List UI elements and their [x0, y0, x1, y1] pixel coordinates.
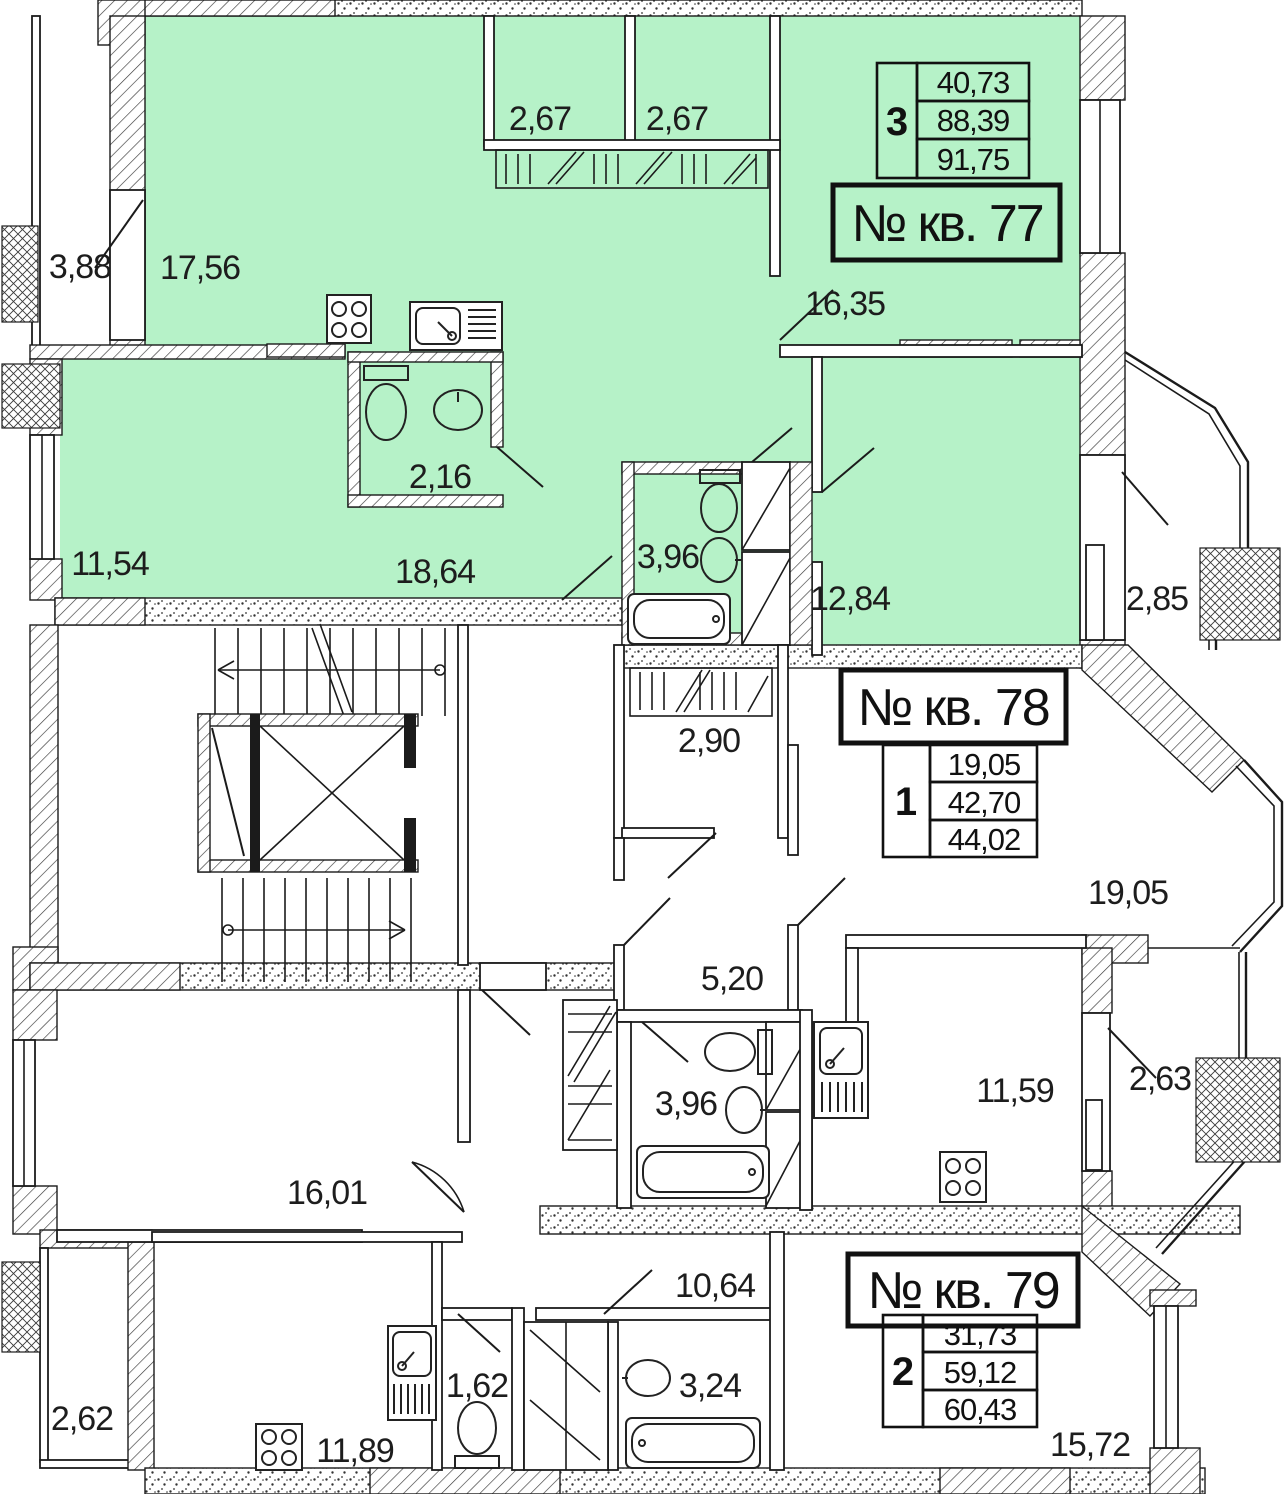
stove-icon-apt77	[327, 295, 371, 343]
area-living-77: 40,73	[937, 65, 1010, 100]
window-living-1601	[13, 1040, 35, 1186]
elevator	[198, 714, 418, 872]
apartment-number-79: № кв. 79	[867, 1262, 1058, 1320]
window-bedroom-left	[30, 435, 54, 559]
sink-icon-apt78	[726, 1087, 766, 1133]
room-label-bathroom-78: 3,96	[655, 1085, 717, 1123]
rooms-count-78: 1	[895, 780, 917, 824]
room-label-bedroom-right-77: 16,35	[805, 285, 885, 323]
room-label-wc-77: 2,16	[409, 458, 471, 496]
room-label-bedroom-bottom-77: 12,84	[810, 580, 890, 618]
room-label-balcony-left-77: 3,88	[49, 248, 111, 286]
bathtub-icon-apt79	[626, 1418, 760, 1468]
area-balcony-79: 60,43	[944, 1392, 1017, 1427]
stairs-upper-flight	[215, 624, 445, 716]
bay-1905-railing	[1232, 760, 1282, 952]
area-balcony-77: 91,75	[937, 142, 1010, 177]
area-living-79: 31,73	[944, 1317, 1017, 1352]
vent-shaft-apt79	[524, 1322, 608, 1470]
stove-icon-apt78	[940, 1152, 986, 1202]
apartment-number-box-77: № кв. 77	[833, 185, 1060, 260]
room-label-closet1-77: 2,67	[509, 100, 571, 138]
room-label-balcony-79: 2,62	[51, 1400, 113, 1438]
apartment-79-entry-gap	[480, 963, 546, 990]
apartment-number-78: № кв. 78	[857, 679, 1048, 737]
window-bedroom-right	[1080, 100, 1120, 253]
rooms-count-79: 2	[892, 1350, 914, 1394]
wardrobe-apt78	[630, 668, 772, 716]
room-label-hall-78: 2,90	[678, 722, 740, 760]
room-label-closet2-77: 2,67	[646, 100, 708, 138]
room-label-kitchen-77: 17,56	[160, 249, 240, 287]
area-living-78: 19,05	[948, 747, 1021, 782]
stove-icon-apt79	[256, 1424, 302, 1470]
area-total-78: 42,70	[948, 785, 1021, 820]
sink-icon-apt79-bath	[622, 1360, 670, 1396]
kitchen-sink-icon-apt78	[814, 1022, 868, 1118]
rooms-count-77: 3	[886, 100, 908, 144]
apartment-number-77: № кв. 77	[851, 195, 1042, 253]
room-label-corridor-78: 5,20	[701, 960, 763, 998]
room-label-balcony-78: 2,63	[1129, 1060, 1191, 1098]
area-balcony-78: 44,02	[948, 822, 1021, 857]
room-label-bathroom-77: 3,96	[637, 538, 699, 576]
apartment-number-box-78: № кв. 78	[841, 670, 1066, 743]
kitchen-sink-icon-apt77	[410, 302, 502, 350]
room-label-kitchen-78: 11,59	[976, 1072, 1054, 1110]
area-total-79: 59,12	[944, 1355, 1017, 1390]
window-bedroom-1572	[1154, 1306, 1178, 1448]
toilet-icon-apt78	[705, 1030, 772, 1074]
room-label-hall-77: 18,64	[395, 553, 475, 591]
room-label-wc-79: 1,62	[446, 1367, 508, 1405]
room-label-hall-79: 10,64	[675, 1267, 755, 1305]
kitchen-sink-icon-apt79	[388, 1326, 436, 1420]
vent-shaft-corridor	[563, 1000, 617, 1150]
floor-plan: 3,88 17,56 2,67 2,67 16,35 2,16 11,54 18…	[0, 0, 1286, 1494]
room-label-living-79: 16,01	[287, 1174, 367, 1212]
info-table-79: 2 31,73 59,12 60,43	[883, 1315, 1037, 1427]
room-label-living-78: 19,05	[1088, 874, 1168, 912]
bathtub-icon-apt77	[628, 594, 730, 644]
room-label-bathroom-79: 3,24	[679, 1367, 741, 1405]
floor-plan-canvas: 3,88 17,56 2,67 2,67 16,35 2,16 11,54 18…	[0, 0, 1286, 1494]
room-label-bedroom-79: 15,72	[1050, 1426, 1130, 1464]
info-table-78: 1 19,05 42,70 44,02	[883, 745, 1037, 857]
balcony-railings	[1125, 352, 1282, 1254]
toilet-icon-apt79	[455, 1402, 499, 1468]
room-label-balcony-right-77: 2,85	[1126, 580, 1188, 618]
room-label-kitchen-79: 11,89	[316, 1432, 394, 1470]
room-label-bedroom-left-77: 11,54	[71, 545, 149, 583]
area-total-77: 88,39	[937, 103, 1010, 138]
bathtub-icon-apt78	[637, 1146, 769, 1198]
